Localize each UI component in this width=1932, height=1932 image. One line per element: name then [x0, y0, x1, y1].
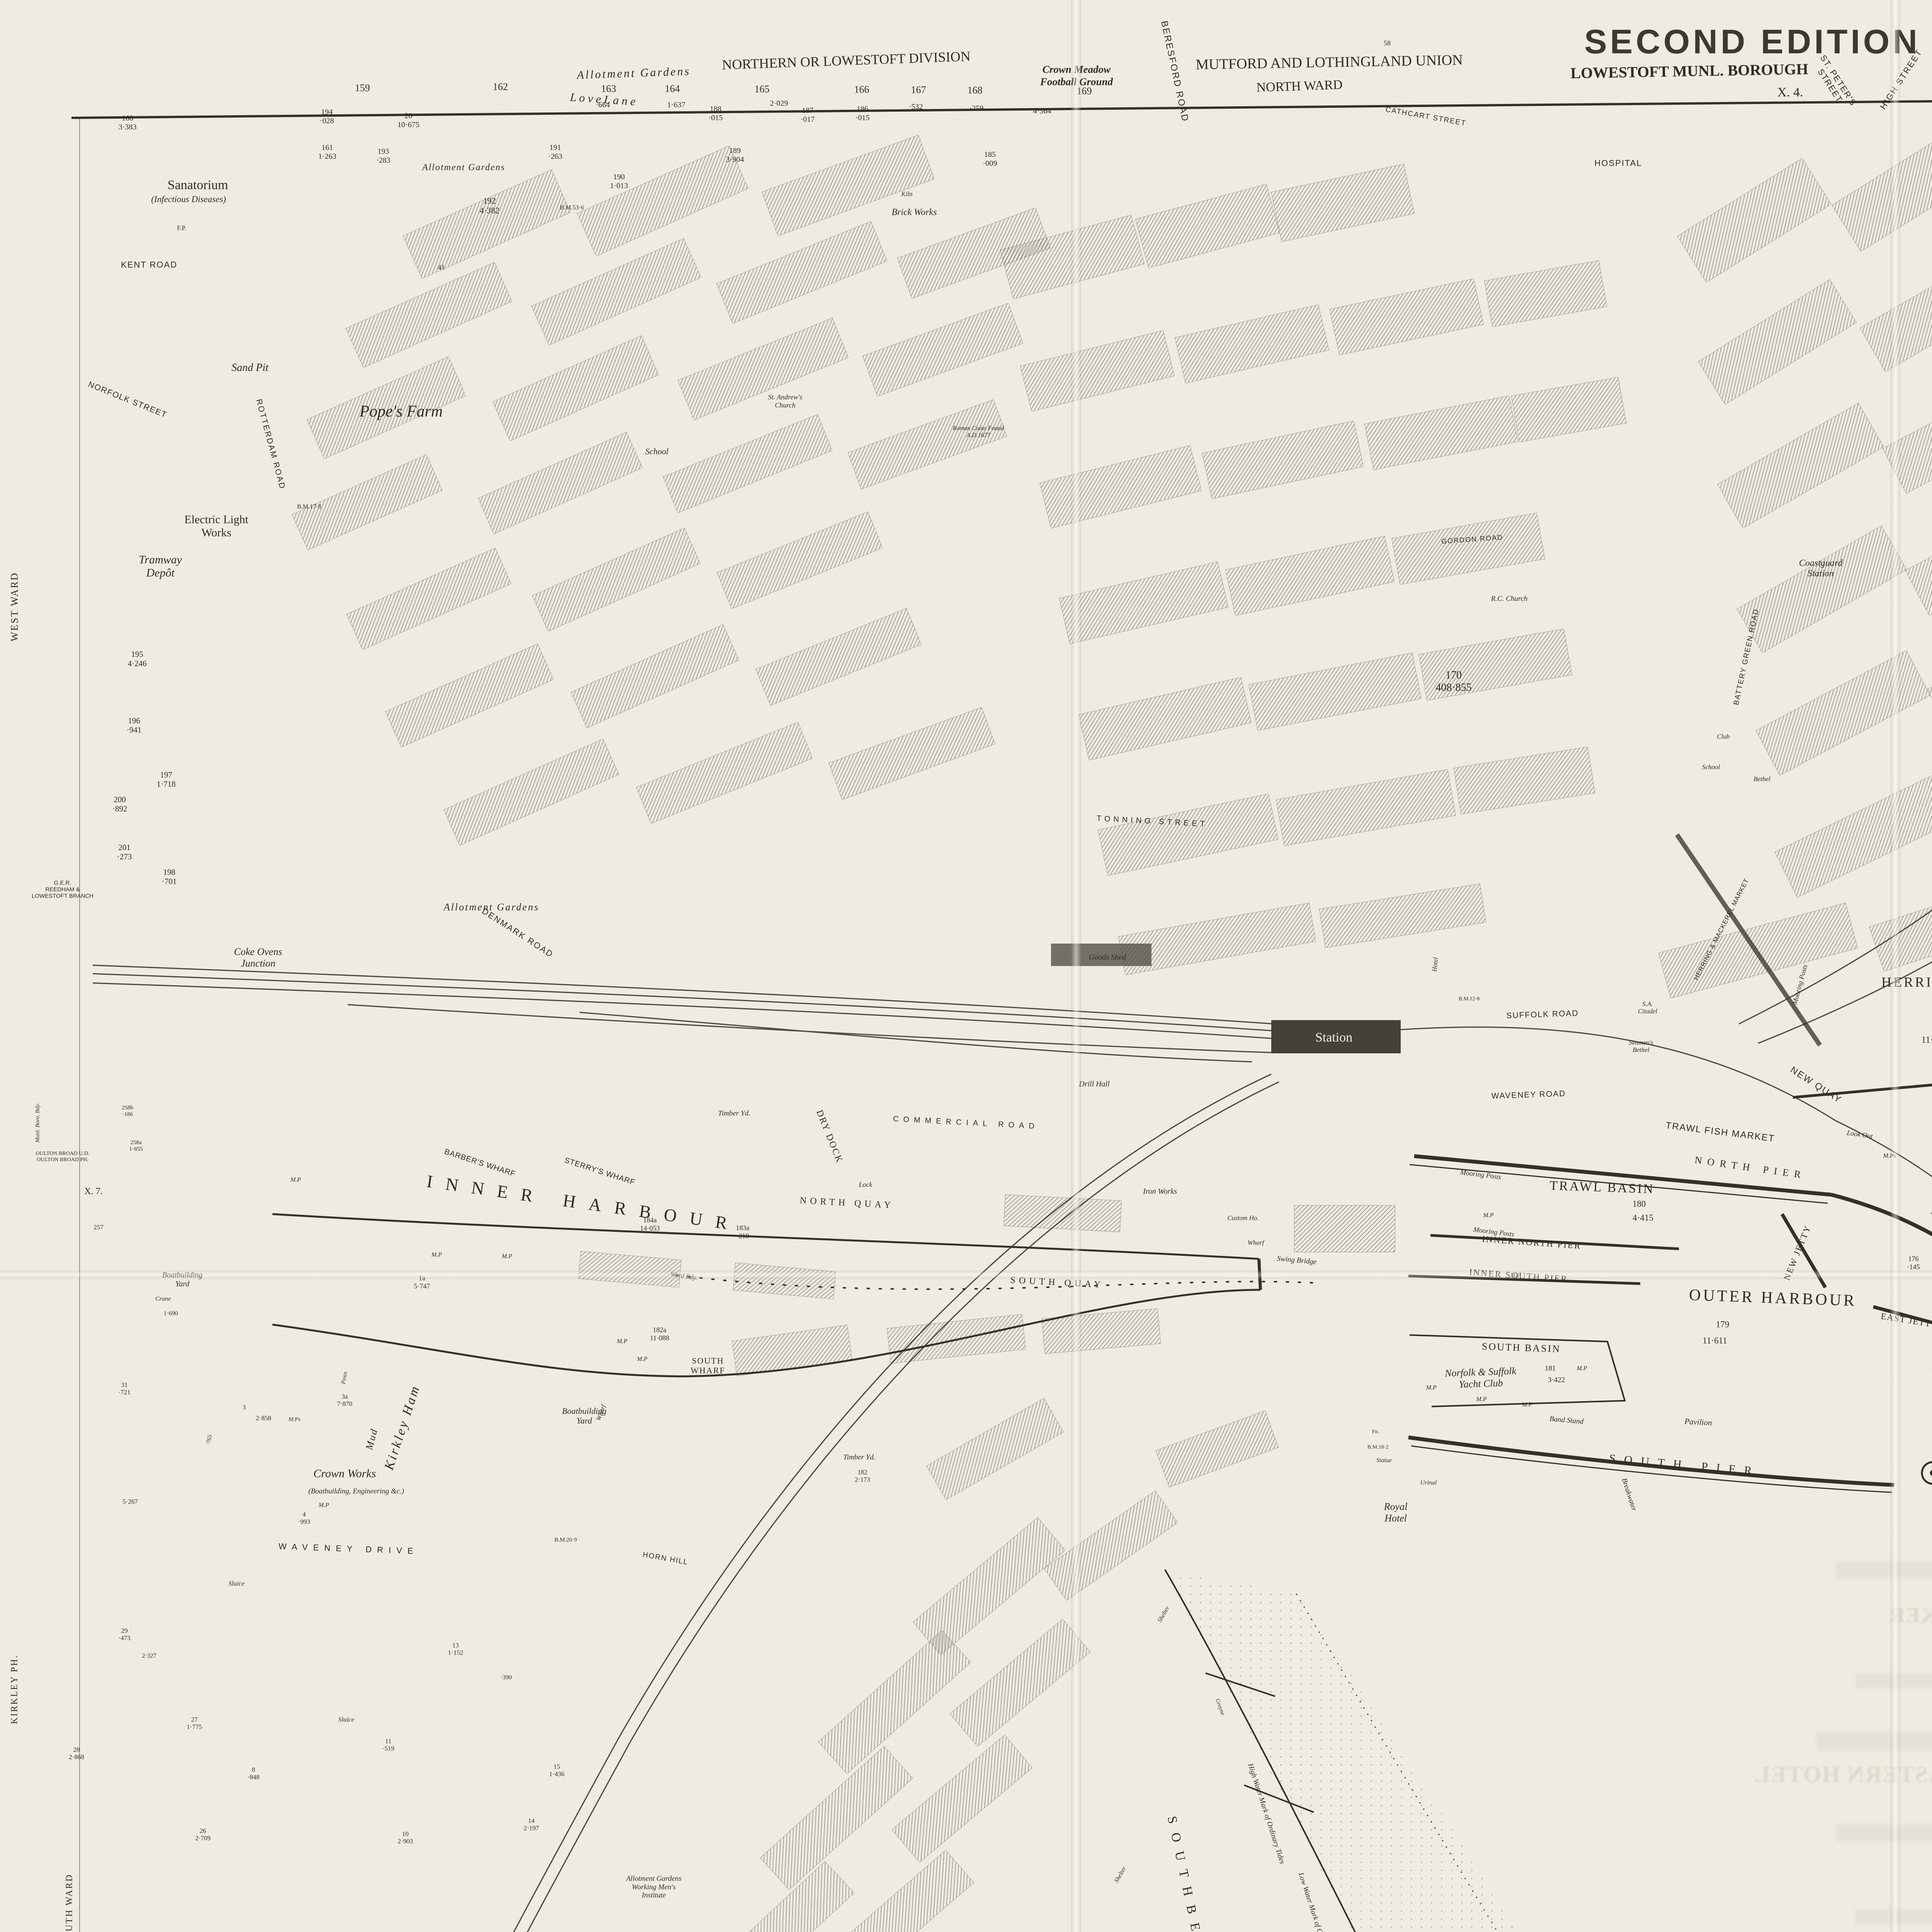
label-new-quay-125: NEW QUAY [1788, 1065, 1844, 1105]
building-block [1004, 1195, 1121, 1232]
building-block [818, 1631, 970, 1773]
label-l-o-v-e-l-a-n-e-41: L o v e L a n e [570, 91, 636, 109]
label-m-ps-216: M.Ps [288, 1416, 300, 1423]
label-urinal-204: Urinal [1420, 1480, 1437, 1486]
label-8-848-237: 8 ·848 [247, 1766, 259, 1781]
label-suffolk-road-96: SUFFOLK ROAD [1506, 1009, 1579, 1020]
building-block [493, 336, 658, 440]
label-161-1-263-77: 161 1·263 [318, 143, 337, 161]
bleedthrough-bar [1855, 1673, 1932, 1689]
label-185-009-70: 185 ·009 [983, 150, 997, 168]
building-block [718, 512, 883, 609]
top-neat-line [71, 96, 1932, 118]
label-mooring-posts-121: Mooring Posts [1791, 964, 1809, 1005]
label-pope-s-farm-49: Pope's Farm [359, 403, 442, 421]
label-oulton-broad-u-d-oulton-broad-ph-176: OULTON BROAD U.D. OULTON BROAD PH. [36, 1151, 89, 1163]
building-block [1020, 331, 1174, 411]
building-block [1699, 280, 1856, 404]
bleedthrough-bar [1855, 1909, 1932, 1924]
label-20-10-675-76: 20 10·675 [398, 112, 420, 129]
building-block [1678, 158, 1831, 282]
label-waveney-road-97: WAVENEY ROAD [1491, 1089, 1566, 1101]
label-statue-205: Statue [1376, 1457, 1392, 1464]
building-block [1294, 1206, 1395, 1252]
label-north-pier-130: NORTH PIER [1694, 1154, 1807, 1181]
label-boatbuilding-yard-172: Boatbuilding Yard [162, 1271, 202, 1289]
label-coastguard-station-89: Coastguard Station [1799, 558, 1842, 580]
shorelines [1165, 116, 1932, 1932]
label-swing-bridge-164: Swing Bridge [1277, 1255, 1317, 1267]
building-block [1044, 1491, 1177, 1600]
building-block [1156, 1411, 1278, 1487]
label-41-81: 41 [438, 264, 445, 272]
label-182a-11-088-169: 182a 11·088 [650, 1326, 669, 1342]
label-bethel-93: Bethel [1753, 775, 1770, 782]
building-block [848, 400, 1007, 489]
map-linework [0, 0, 1932, 1932]
label-191-263-73: 191 ·263 [548, 143, 563, 161]
label-walter-crocker-300: WALTER CROCKER [1888, 1604, 1932, 1628]
building-block [663, 415, 832, 513]
label-st-peter-s-street-13: ST. PETER'S STREET [1810, 53, 1859, 113]
label-4-364-39: 4·364 [1033, 107, 1051, 116]
label-inner-harbour-149: INNER HARBOUR [425, 1171, 742, 1235]
os-map-sheet: SECOND EDITION 1905LOWESTOFT MUNL. BOROU… [0, 0, 1932, 1932]
label-197-1-718-58: 197 1·718 [157, 770, 176, 789]
label-m-p-189: M.P [1476, 1396, 1486, 1403]
label-176-145-141: 176 ·145 [1907, 1255, 1920, 1270]
building-block [1906, 502, 1932, 615]
label-mud-212: Mud [363, 1427, 380, 1451]
building-block [892, 1735, 1032, 1862]
label-rotterdam-road-54: ROTTERDAM ROAD [254, 398, 287, 490]
label-257-178: 257 [94, 1223, 104, 1231]
label-1-637-32: 1·637 [667, 101, 685, 110]
label-160-3-383-80: 160 3·383 [119, 114, 137, 132]
label-258a-1-855-180: 258a 1·855 [129, 1139, 143, 1153]
label-181-193: 181 [1545, 1364, 1556, 1373]
label-b-m-53-6-79: B.M.53·6 [560, 204, 584, 211]
label-3a-7-870-214: 3a 7·870 [337, 1393, 352, 1408]
label-4-415-134: 4·415 [1633, 1213, 1653, 1223]
label-royal-hotel-208: Royal Hotel [1384, 1501, 1408, 1524]
label-timber-yd-153: Timber Yd. [718, 1109, 750, 1118]
label-187-017-35: 187 ·017 [801, 106, 815, 124]
label-allotment-gardens-44: Allotment Gardens [422, 162, 505, 173]
south-beach-stipple [0, 0, 1932, 1932]
label-190-1-013-72: 190 1·013 [610, 173, 628, 190]
label-kent-road-45: KENT ROAD [121, 260, 177, 269]
label-2-858-215: 2·858 [256, 1414, 271, 1422]
label-hotel-98: Hotel [1431, 957, 1440, 972]
label-kirkley-ham-211: Kirkley Ham [382, 1383, 423, 1472]
label-wharf-166: Wharf [1248, 1239, 1264, 1246]
label-station-161: Station [1309, 1030, 1359, 1046]
label-r-c-church-88: R.C. Church [1491, 595, 1528, 603]
label-infectious-diseases-43: (Infectious Diseases) [151, 194, 226, 204]
building-block [578, 1252, 681, 1287]
label-trawl-basin-132: TRAWL BASIN [1549, 1179, 1655, 1197]
building-block [1042, 1309, 1161, 1354]
label-2-327-231: 2·327 [142, 1653, 156, 1660]
label-northern-or-lowestoft-division-3: NORTHERN OR LOWESTOFT DIVISION [722, 48, 971, 73]
label-band-stand-196: Band Stand [1549, 1415, 1584, 1426]
label-mutford-and-lothingland-union-2: MUTFORD AND LOTHINGLAND UNION [1196, 52, 1463, 73]
label-168-29: 168 [968, 85, 983, 96]
label-lock-155: Lock [859, 1181, 872, 1189]
building-block [1718, 403, 1884, 528]
paper-fold [0, 1270, 1932, 1279]
label-new-jetty-138: NEW JETTY [1782, 1223, 1813, 1282]
label-27-1-775-235: 27 1·775 [187, 1716, 202, 1731]
building-block [1330, 279, 1483, 355]
label-m-ps-129: M.Ps [1883, 1153, 1896, 1160]
building-block [950, 1619, 1090, 1747]
label-north-ward-7: NORTH WARD [1256, 78, 1343, 96]
building-block [1365, 396, 1518, 469]
label-crane-173: Crane [155, 1296, 171, 1303]
label-commercial-road-83: COMMERCIAL ROAD [893, 1115, 1039, 1131]
label-drill-hall-162: Drill Hall [1079, 1080, 1109, 1089]
building-block [829, 707, 995, 799]
building-block [1659, 903, 1857, 998]
building-block [760, 1747, 912, 1889]
label-3-422-195: 3·422 [1548, 1376, 1565, 1384]
building-block [1485, 261, 1607, 327]
building-block [1737, 526, 1906, 653]
building-block [1276, 770, 1456, 845]
label-school-92: School [1702, 763, 1720, 770]
label-high-water-mark-of-ordinary-tides-269: High Water Mark of Ordinary Tides [1246, 1762, 1287, 1865]
label-179-147: 179 [1716, 1320, 1730, 1330]
label-b-m-20-9-226: B.M.20·9 [554, 1537, 577, 1543]
label-180-133: 180 [1633, 1199, 1646, 1209]
label-sand-pit-48: Sand Pit [231, 362, 269, 374]
label-26-2-709-239: 26 2·709 [195, 1827, 211, 1842]
label-shelter-265: Shelter [1113, 1866, 1128, 1884]
label-198-701-61: 198 ·701 [162, 868, 177, 886]
label-196-941-57: 196 ·941 [127, 716, 142, 735]
label-14-2-197-241: 14 2·197 [524, 1817, 539, 1832]
label-pavilion-197: Pavilion [1684, 1417, 1712, 1428]
building-block [1136, 184, 1279, 268]
label-s-a-citadel-94: S.A. Citadel [1638, 1000, 1657, 1015]
label-club-91: Club [1717, 733, 1730, 740]
label-192-4-382-78: 192 4·382 [480, 196, 499, 215]
label-165-26: 165 [755, 83, 770, 95]
label-waveney-drive-225: WAVENEY DRIVE [278, 1541, 418, 1556]
building-block [1870, 891, 1932, 971]
building-block [444, 739, 619, 845]
building-block [386, 644, 553, 747]
building-block [1928, 630, 1932, 734]
label-259-38: ·259 [969, 104, 984, 113]
building-block [1454, 747, 1595, 814]
label-inner-north-pier-136: INNER NORTH PIER [1482, 1234, 1582, 1251]
label-barber-s-wharf-150: BARBER'S WHARF [443, 1147, 517, 1179]
label-crown-works-220: Crown Works [313, 1467, 376, 1480]
label-north-quay-154: NORTH QUAY [799, 1196, 894, 1211]
label-boatbuilding-engineering-c-221: (Boatbuilding, Engineering &c.) [308, 1487, 404, 1496]
building-block [1226, 536, 1394, 616]
bleedthrough-bar [1835, 1561, 1932, 1579]
railway-lines [93, 657, 1932, 1932]
label-beresford-road-12: BERESFORD ROAD [1159, 20, 1190, 123]
label-184a-14-053-156: 184a 14·053 [640, 1216, 660, 1232]
label-norfolk-suffolk-yacht-club-192: Norfolk & Suffolk Yacht Club [1445, 1365, 1517, 1391]
building-block [1119, 903, 1316, 975]
label-south-quay-168: SOUTH QUAY [1010, 1275, 1104, 1291]
building-block [571, 625, 738, 728]
label-m-p-183: M.P [502, 1253, 512, 1260]
label-south-ward-251: SOUTH WARD [64, 1874, 75, 1932]
label-south-basin-191: SOUTH BASIN [1481, 1341, 1561, 1355]
label-west-ward-55: WEST WARD [9, 572, 20, 641]
label-south-pier-198: SOUTH PIER [1609, 1452, 1761, 1478]
label-dry-dock-152: DRY DOCK [814, 1109, 845, 1165]
label-iron-works-163: Iron Works [1143, 1187, 1177, 1196]
building-block [913, 1518, 1065, 1655]
marsh-texture [0, 0, 1932, 1932]
building-block [347, 548, 511, 650]
label-hospital-84: HOSPITAL [1594, 158, 1642, 168]
label-allotment-gardens-4: Allotment Gardens [577, 65, 690, 82]
bleedthrough-bar [1835, 1824, 1932, 1842]
piers-and-jetties [1408, 1156, 1932, 1492]
label-m-p-186: M.P [1483, 1212, 1493, 1219]
label-breakwater-203: Breakwater [1620, 1477, 1638, 1512]
building-block [1271, 164, 1414, 241]
label-st-andrew-s-church-66: St. Andrew's Church [768, 393, 803, 409]
building-block [1202, 421, 1363, 499]
label-31-721-218: 31 ·721 [118, 1381, 130, 1396]
label-m-p-182: M.P [431, 1252, 442, 1259]
label-sluice-228: Sluice [228, 1580, 245, 1587]
label-allotment-gardens-working-men-s-institute-253: Allotment Gardens Working Men's Institut… [626, 1875, 681, 1900]
label-m-p-184: M.P [617, 1338, 627, 1345]
label-s-o-u-t-h-b-e-a-c-h-271: S O U T H B E A C H [1164, 1815, 1215, 1932]
label-195-4-246-56: 195 4·246 [128, 650, 147, 668]
label-200-892-59: 200 ·892 [112, 795, 128, 814]
label-10-2-903-240: 10 2·903 [398, 1830, 413, 1845]
building-block [1040, 446, 1201, 528]
label-164-25: 164 [665, 83, 680, 95]
label-outer-harbour-146: OUTER HARBOUR [1689, 1286, 1857, 1311]
label-horn-hill-227: HORN HILL [642, 1551, 689, 1567]
label-m-p-190: M.P [1522, 1401, 1532, 1408]
label-mooring-posts-131: Mooring Posts [1460, 1168, 1502, 1181]
building-block [1883, 376, 1932, 493]
building-block [1079, 677, 1251, 760]
label-kirkley-ph-250: KIRKLEY PH. [9, 1655, 20, 1724]
label-m-p-222: M.P [318, 1502, 329, 1509]
label-crown-meadow-5: Crown Meadow [1043, 64, 1111, 76]
label-custom-ho-165: Custom Ho. [1227, 1214, 1259, 1221]
label-sanatorium-42: Sanatorium [168, 178, 228, 193]
label-532-37: ·532 [909, 103, 923, 112]
label-goods-shed-160: Goods Shed [1089, 953, 1126, 962]
label-m-p-194: M.P [1577, 1365, 1587, 1372]
label-170-408-855-90: 170 408·855 [1435, 669, 1471, 694]
label-182-2-173-273: 182 2·173 [855, 1469, 870, 1484]
label-norfolk-street-47: NORFOLK STREET [87, 380, 168, 420]
label-1a-5-747-159: 1a 5·747 [414, 1274, 430, 1290]
label-166-27: 166 [854, 84, 869, 95]
building-block [1249, 653, 1421, 730]
label-186-015-36: 186 ·015 [855, 105, 870, 122]
building-block [733, 1263, 835, 1299]
label-timber-yd-272: Timber Yd. [843, 1453, 875, 1462]
label-denmark-road-65: DENMARK ROAD [480, 906, 556, 960]
label-3-217: 3 [243, 1403, 246, 1411]
label-kiln-69: Kiln [901, 190, 912, 197]
label-11-611-148: 11·611 [1702, 1336, 1727, 1346]
label-159-22: 159 [355, 82, 370, 94]
building-block [927, 1398, 1063, 1500]
label-m-p-185: M.P [637, 1356, 647, 1363]
label-4-993-223: 4 ·993 [298, 1511, 310, 1526]
label-29-473-230: 29 ·473 [118, 1627, 130, 1642]
label-188-015-33: 188 ·015 [709, 105, 723, 122]
label-low-water-mark-of-ordinary-tides-270: Low Water Mark of Ordinary Tides [1296, 1872, 1336, 1932]
label-g-e-r-reedham-lowestoft-branch-62: G.E.R. REEDHAM & LOWESTOFT BRANCH [32, 879, 94, 899]
label-roman-coins-found-a-d-1677-67: Roman Coins Found A.D.1677 [953, 425, 1004, 439]
building-block [532, 528, 700, 631]
building-block [732, 1325, 852, 1376]
label-11-177-119: 11·177 [1921, 1035, 1932, 1045]
label-south-wharf-170: SOUTH WHARF [690, 1356, 725, 1375]
label-school-50: School [645, 446, 668, 456]
label-b-m-12-8-99: B.M.12·8 [1459, 996, 1480, 1002]
label-look-out-128: Look Out [1846, 1129, 1873, 1140]
building-block [1320, 884, 1486, 947]
label-b-m-17-8-53: B.M.17·8 [297, 503, 321, 510]
label-cathcart-street-85: CATHCART STREET [1385, 105, 1467, 128]
building-block [1098, 794, 1278, 876]
label-183a-219-157: 183a ·219 [736, 1224, 750, 1240]
label-15-1-436-238: 15 1·436 [549, 1763, 565, 1778]
label-x-4-11: X. 4. [1777, 85, 1803, 100]
label-herring-basin-117: HERRING BASIN [1881, 974, 1932, 990]
building-block [1175, 305, 1328, 383]
label-f-p-46: F.P. [177, 224, 186, 231]
label-trawl-fish-market-127: TRAWL FISH MARKET [1665, 1120, 1775, 1144]
building-block [717, 221, 887, 323]
label-189-3-904-71: 189 3·904 [726, 146, 744, 164]
label-169-30: 169 [1077, 85, 1092, 97]
label-1-690-174: 1·690 [163, 1310, 178, 1317]
building-block [346, 262, 512, 367]
label-the-great-eastern-hotel-301: THE GREAT EASTERN HOTEL [1754, 1761, 1932, 1787]
label-162-23: 162 [493, 81, 508, 93]
label-munl-boro-bdy-175: Munl. Boro. Bdy. [34, 1103, 41, 1143]
label-boatbuilding-yard-171: Boatbuilding Yard [562, 1406, 607, 1425]
building-block [1860, 251, 1932, 372]
label-north-139: NORTH [1928, 1209, 1932, 1250]
building-block [403, 170, 570, 278]
label-13-1-152-232: 13 1·152 [448, 1642, 463, 1657]
label-sluice-229: Sluice [338, 1716, 354, 1723]
bleedthrough-bar [1816, 1731, 1932, 1751]
label-east-jetty-142: EAST JETTY [1880, 1311, 1932, 1330]
label-x-7-177: X. 7. [84, 1186, 102, 1197]
label-194-028-75: 194 ·028 [320, 108, 334, 126]
label-28-2-868-234: 28 2·868 [69, 1746, 84, 1761]
building-block [1392, 513, 1544, 584]
label-seamen-s-bethel-95: Seamen's Bethel [1629, 1039, 1653, 1054]
building-block [1832, 128, 1932, 251]
label-m-p-187: M.P [1510, 1272, 1520, 1279]
label-posts-213: Posts [340, 1371, 349, 1385]
label-brick-works-68: Brick Works [891, 207, 937, 218]
building-block [835, 1850, 974, 1932]
building-block [478, 432, 642, 534]
building-block [1060, 562, 1228, 643]
building-block [577, 146, 748, 256]
building-block [1756, 651, 1930, 775]
building-block [762, 135, 934, 236]
label-167-28: 167 [911, 84, 926, 96]
label-shelter-264: Shelter [1156, 1605, 1171, 1624]
label-5-267-224: 5·267 [122, 1498, 138, 1505]
building-block [887, 1315, 1025, 1363]
building-block [1775, 776, 1932, 897]
label-m-p-188: M.P [1426, 1384, 1436, 1391]
label-2-029-34: 2·029 [770, 99, 788, 108]
label-electric-light-works-51: Electric Light Works [184, 513, 248, 539]
building-block [637, 722, 813, 823]
label-tramway-dep-t-52: Tramway Depôt [139, 553, 182, 580]
label-258b-186-179: 258b ·186 [122, 1105, 133, 1118]
building-block [1512, 378, 1626, 442]
label-390-233: ·390 [500, 1674, 512, 1681]
label-sterry-s-wharf-151: STERRY'S WHARF [563, 1156, 636, 1187]
label-groyne-266: Groyne [1214, 1698, 1226, 1716]
label-193-283-74: 193 ·283 [376, 147, 391, 165]
label-coke-ovens-junction-63: Coke Ovens Junction [234, 946, 282, 969]
building-block [532, 238, 701, 345]
north-beach-stipple [0, 0, 1932, 1932]
label-lowestoft-munl-borough-1: LOWESTOFT MUNL. BOROUGH [1570, 60, 1808, 82]
label-11-519-236: 11 ·519 [382, 1738, 394, 1753]
building-block [863, 303, 1022, 396]
label-201-273-60: 201 ·273 [117, 843, 132, 862]
label-b-m-18-2-206: B.M.18·2 [1367, 1444, 1388, 1451]
building-block [756, 609, 921, 705]
label-fn-207: Fn. [1372, 1429, 1379, 1435]
label-58-40: 58 [1384, 39, 1391, 48]
building-block [292, 455, 442, 550]
building-block [678, 318, 848, 420]
label-second-edition-1905-0: SECOND EDITION 1905 [1584, 22, 1932, 61]
label-765-219: ·765 [205, 1434, 214, 1446]
label-m-p-181: M.P [290, 1177, 301, 1184]
